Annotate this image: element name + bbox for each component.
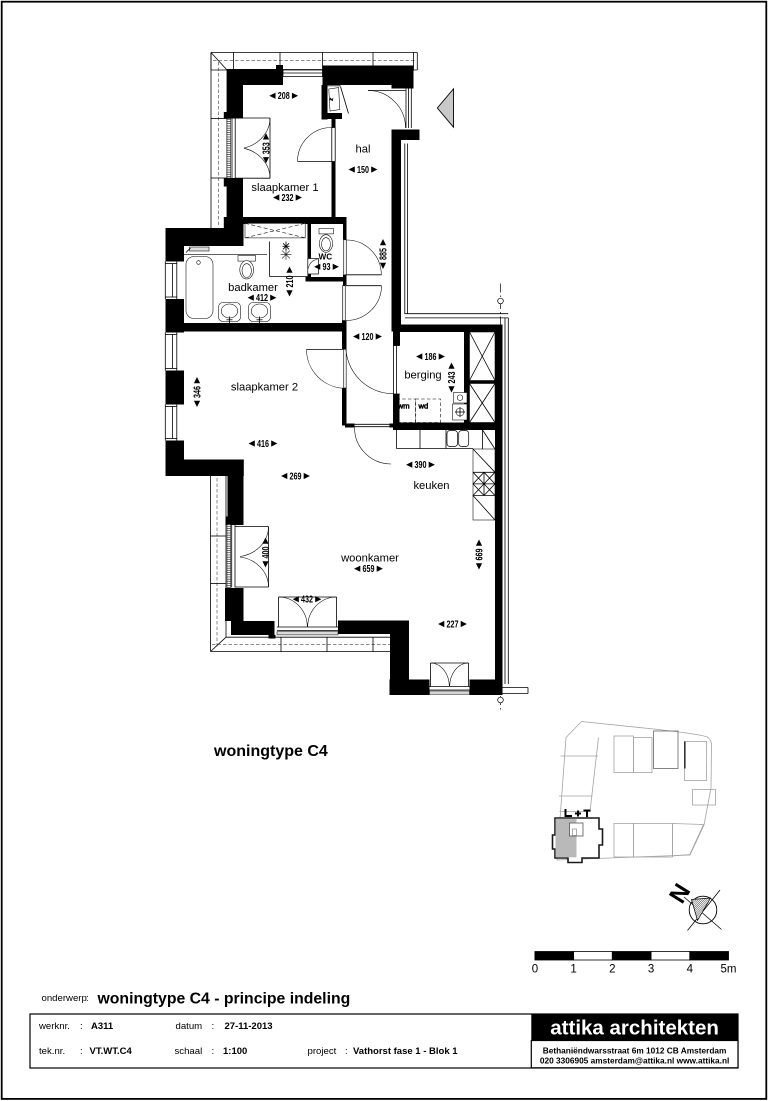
- svg-text:150: 150: [357, 165, 369, 176]
- svg-text:werknr.: werknr.: [38, 1021, 70, 1032]
- svg-text:412: 412: [256, 293, 268, 304]
- svg-text:0: 0: [532, 964, 538, 976]
- svg-text:120: 120: [362, 332, 374, 343]
- svg-text:2: 2: [609, 964, 615, 976]
- svg-text:A311: A311: [91, 1021, 114, 1032]
- svg-text:93: 93: [323, 262, 331, 273]
- svg-text:WC: WC: [318, 252, 332, 261]
- svg-text:5m: 5m: [721, 964, 737, 976]
- svg-text:208: 208: [278, 91, 290, 102]
- svg-text::: :: [212, 1046, 215, 1057]
- svg-text:400: 400: [261, 546, 272, 558]
- svg-text:attika architekten: attika architekten: [550, 1017, 719, 1040]
- svg-text:27-11-2013: 27-11-2013: [225, 1021, 273, 1032]
- svg-text:Bethaniëndwarsstraat 6m 1012: Bethaniëndwarsstraat 6m 1012 CB Amsterda…: [543, 1046, 727, 1056]
- svg-text:4: 4: [687, 964, 694, 976]
- svg-text:885: 885: [378, 248, 389, 260]
- svg-text:432: 432: [301, 595, 313, 606]
- svg-text:1:100: 1:100: [223, 1046, 247, 1057]
- svg-text:berging: berging: [404, 370, 441, 382]
- svg-text:416: 416: [257, 439, 269, 450]
- svg-text::: :: [80, 1021, 83, 1032]
- svg-text:669: 669: [474, 548, 485, 560]
- svg-text:1: 1: [570, 964, 576, 976]
- svg-text:269: 269: [290, 471, 302, 482]
- svg-text:243: 243: [447, 371, 458, 383]
- svg-text:346: 346: [192, 386, 203, 398]
- svg-text:227: 227: [447, 619, 459, 630]
- svg-text:onderwerp: onderwerp: [42, 993, 87, 1004]
- svg-text:woningtype C4: woningtype C4: [213, 743, 328, 760]
- svg-text::: :: [212, 1021, 215, 1032]
- svg-text:353: 353: [261, 142, 272, 154]
- svg-text:186: 186: [425, 352, 437, 363]
- svg-text:tek.nr.: tek.nr.: [39, 1046, 65, 1057]
- svg-text::: :: [80, 1046, 83, 1057]
- svg-text:3: 3: [648, 964, 654, 976]
- svg-text:datum: datum: [176, 1021, 203, 1032]
- svg-text:wm: wm: [397, 402, 410, 411]
- svg-text:woonkamer: woonkamer: [340, 553, 399, 565]
- svg-text:keuken: keuken: [413, 480, 449, 492]
- svg-text:390: 390: [415, 460, 427, 471]
- svg-text:659: 659: [363, 564, 375, 575]
- svg-text::: :: [345, 1046, 348, 1057]
- svg-text:badkamer: badkamer: [228, 282, 278, 294]
- svg-text:woningtype C4 - principe indel: woningtype C4 - principe indeling: [97, 991, 351, 1008]
- svg-text:hal: hal: [356, 143, 371, 155]
- svg-text:VT.WT.C4: VT.WT.C4: [90, 1046, 133, 1057]
- svg-text:slaapkamer 2: slaapkamer 2: [231, 382, 298, 394]
- svg-text:Vathorst fase 1 - Blok 1: Vathorst fase 1 - Blok 1: [353, 1046, 458, 1057]
- svg-text:project: project: [308, 1046, 337, 1057]
- svg-text:210: 210: [285, 275, 296, 287]
- svg-text:wd: wd: [418, 402, 429, 411]
- svg-text:232: 232: [282, 193, 294, 204]
- svg-text:020 3306905 amsterdam@attika.: 020 3306905 amsterdam@attika.nl www.atti…: [540, 1056, 729, 1066]
- svg-text:schaal: schaal: [175, 1046, 203, 1057]
- svg-text:slaapkamer 1: slaapkamer 1: [251, 182, 318, 194]
- svg-text::: :: [86, 993, 89, 1004]
